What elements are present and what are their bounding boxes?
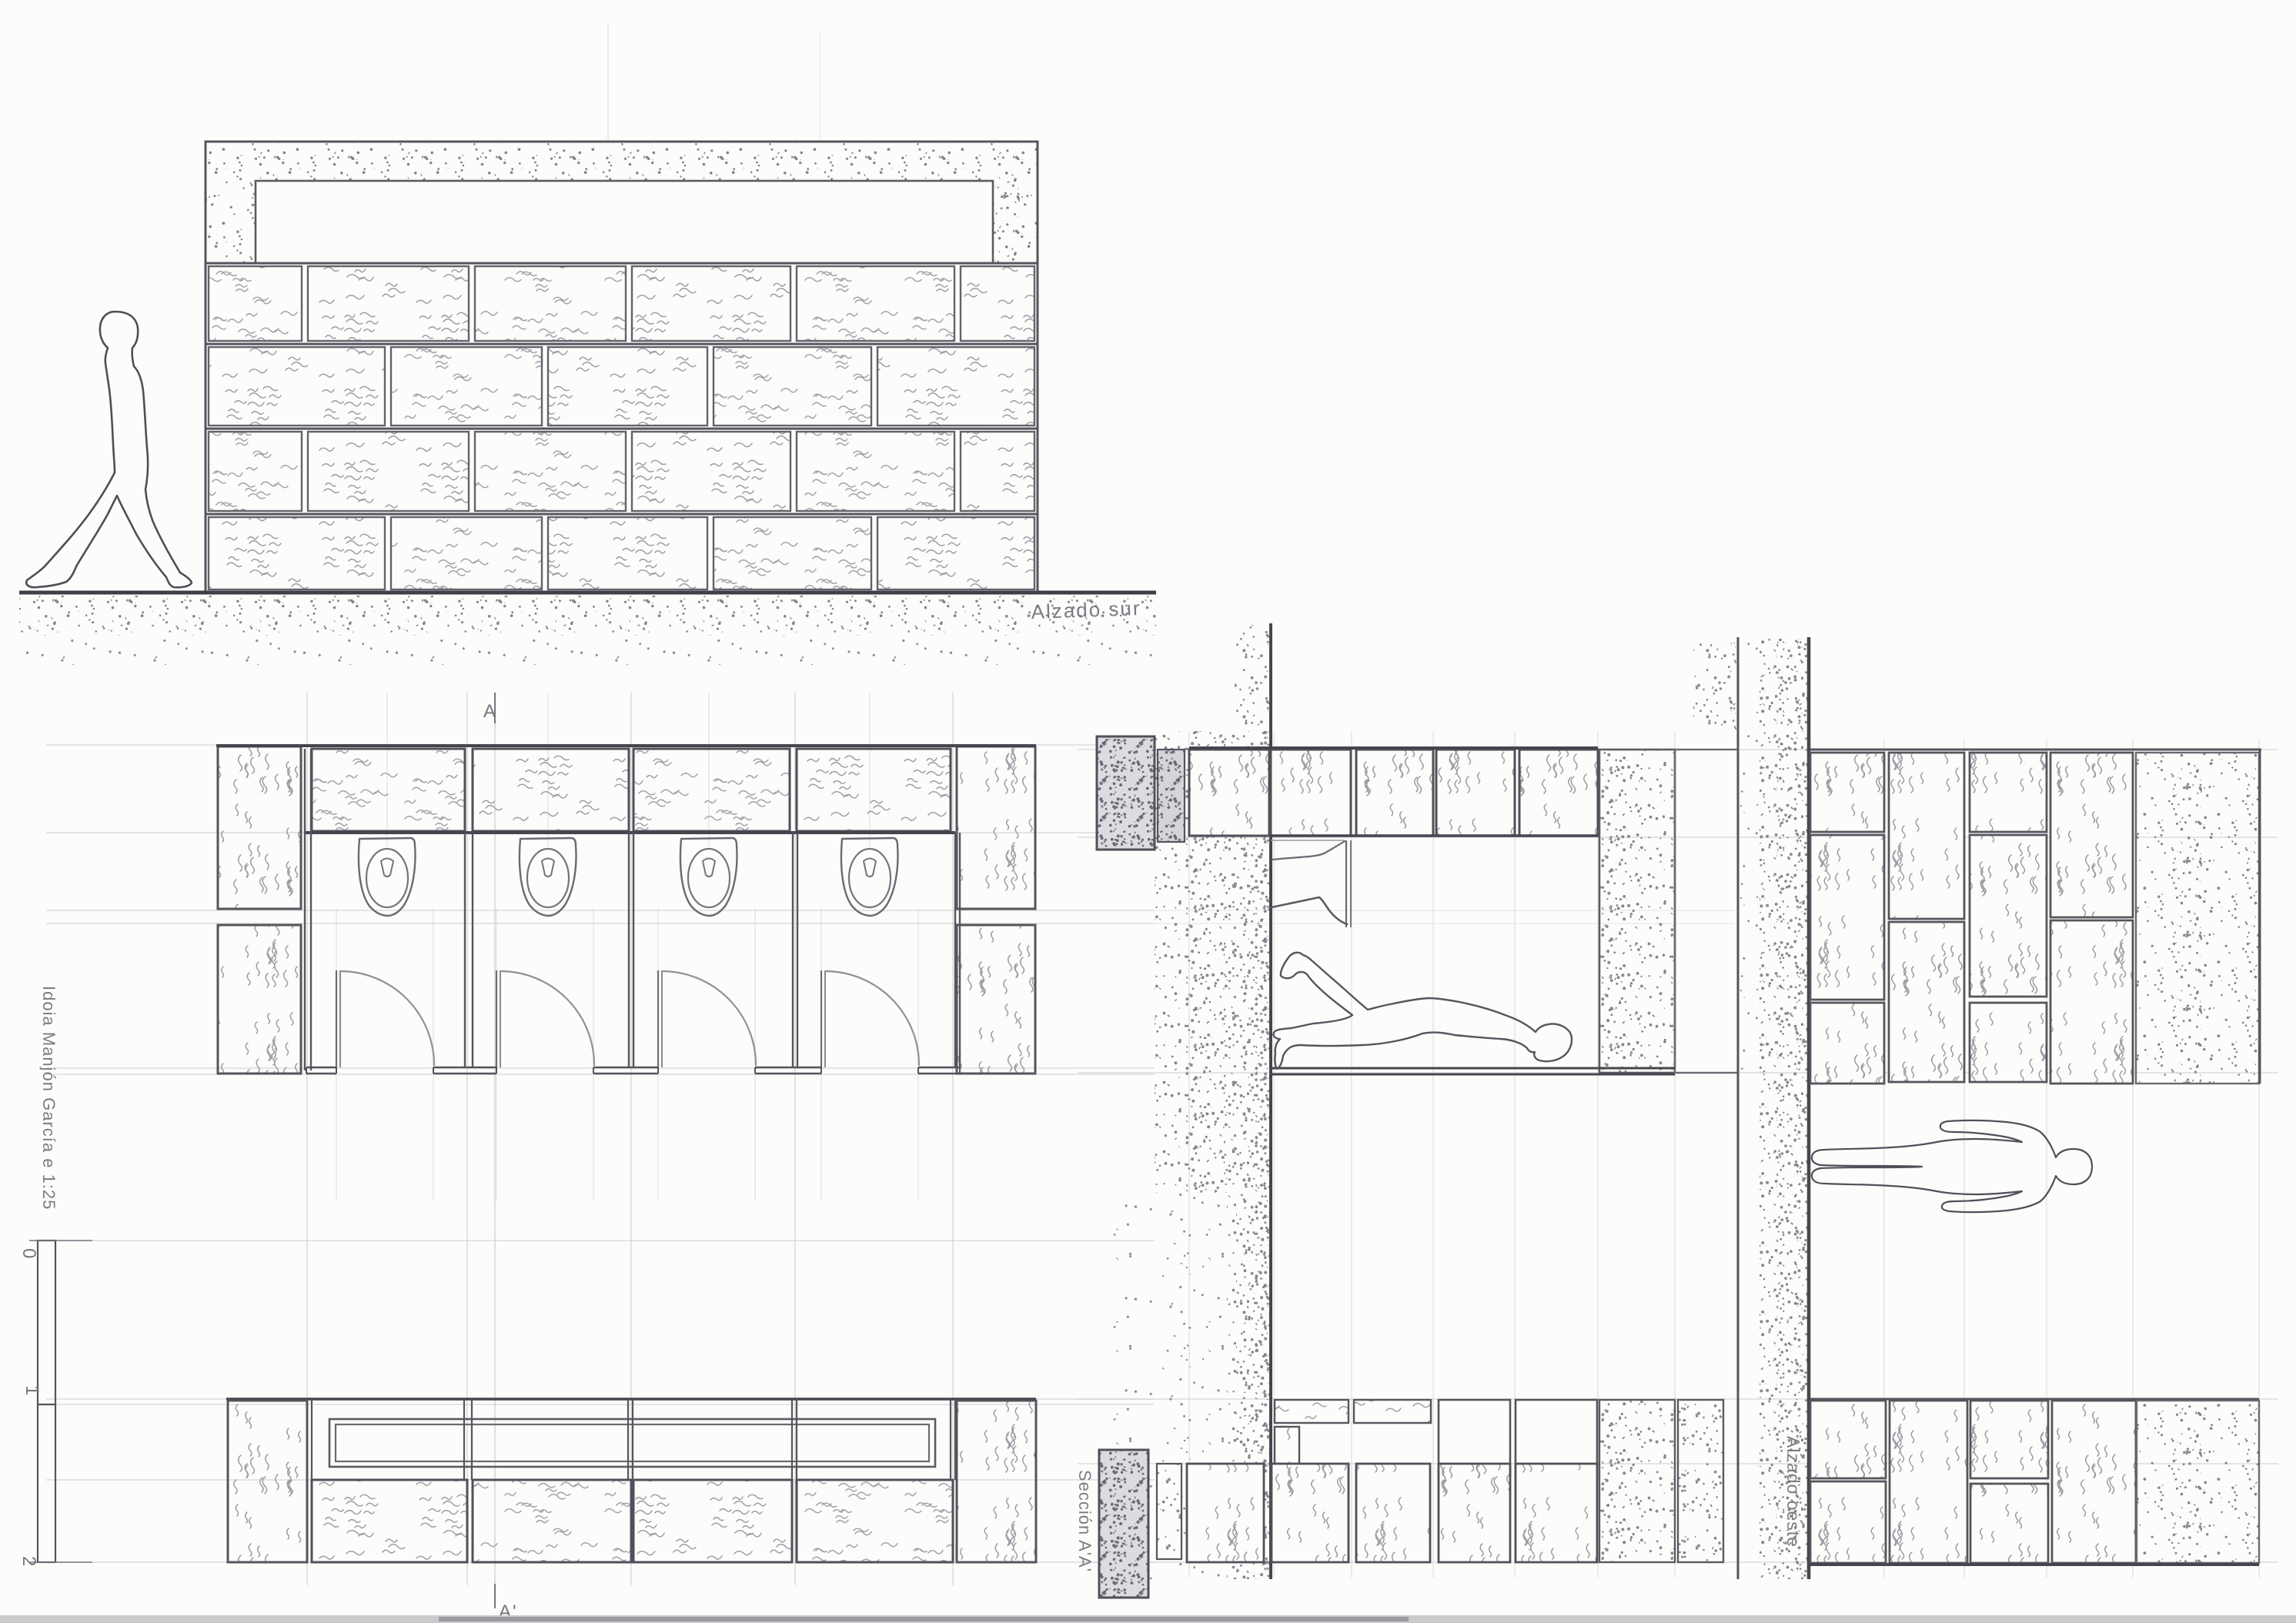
svg-text:0: 0 (18, 1248, 39, 1260)
svg-text:1: 1 (22, 1385, 42, 1397)
svg-text:Alzado oeste: Alzado oeste (1783, 1436, 1803, 1548)
svg-text:Idoia Manjón García e 1:25: Idoia Manjón García e 1:25 (39, 986, 58, 1210)
svg-text:Alzado sur: Alzado sur (1031, 596, 1141, 623)
svg-text:2: 2 (18, 1556, 39, 1568)
svg-text:Sección A'A': Sección A'A' (1075, 1470, 1095, 1572)
